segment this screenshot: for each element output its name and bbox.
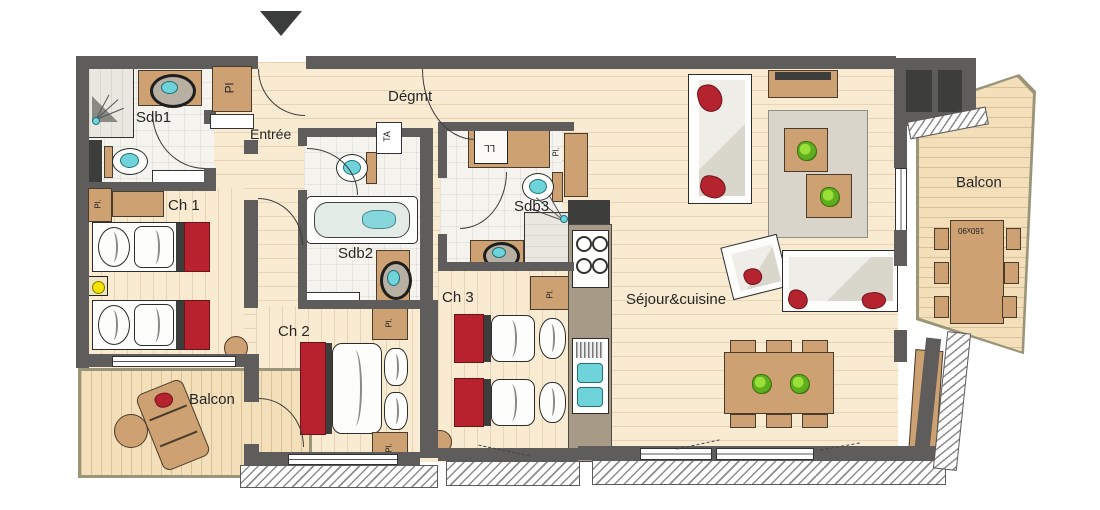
dining-chair <box>730 414 756 428</box>
sink-basin-sdb1 <box>161 81 178 94</box>
wall <box>244 354 259 402</box>
sink-basin-sdb3 <box>492 247 506 258</box>
exterior-hatch <box>592 460 946 485</box>
wall <box>894 230 907 266</box>
window-ch2 <box>288 454 398 465</box>
tv <box>775 72 831 80</box>
balcony-chair <box>1004 262 1019 284</box>
burner <box>576 236 592 252</box>
bed-ch3-2 <box>452 376 568 429</box>
burner <box>576 258 592 274</box>
balcony-table-size: 160x90 <box>958 226 984 234</box>
washing-machine-label: LL <box>484 142 495 152</box>
balcony-round-table <box>114 414 148 448</box>
burner <box>592 236 608 252</box>
cabinet-ch1 <box>112 191 164 217</box>
oven <box>568 200 610 224</box>
electrical-light <box>92 281 105 294</box>
room-label-ch3: Ch 3 <box>442 290 474 305</box>
wall <box>420 300 438 458</box>
room-label-ch2: Ch 2 <box>278 324 310 339</box>
wall <box>298 190 307 308</box>
closet-label: Pl. <box>95 199 103 208</box>
wall <box>298 300 430 309</box>
balcony-table <box>950 220 1004 324</box>
room-label-ch1: Ch 1 <box>168 198 200 213</box>
toilet-bowl-sdb1 <box>120 153 139 168</box>
ta-label: TA <box>383 131 392 142</box>
wall <box>204 168 216 184</box>
room-label-balcon-right: Balcon <box>956 175 1002 190</box>
bathtub-water-sdb2 <box>362 210 396 229</box>
balcony-chair <box>934 296 949 318</box>
bed-ch1-2 <box>92 298 210 353</box>
room-label-entree: Entrée <box>250 127 291 141</box>
wall <box>244 200 258 308</box>
room-label-balcon-left: Balcon <box>189 392 235 407</box>
closet-label: Pl <box>223 83 235 94</box>
entrance-arrow-icon <box>260 11 302 36</box>
balcony-chair <box>1002 296 1017 318</box>
shelf-entree <box>210 114 254 129</box>
window-balcony <box>895 168 907 232</box>
room-label-sdb1: Sdb1 <box>136 110 171 125</box>
toilet-bowl-sdb3 <box>529 179 547 194</box>
bed-ch1-1 <box>92 220 210 275</box>
floor-plan: Pl. Pl. LL Pl. Pl. <box>0 0 1100 510</box>
shaft <box>938 70 962 112</box>
wall <box>894 330 907 362</box>
exterior-hatch <box>240 465 438 488</box>
bed-ch3-1 <box>452 312 568 365</box>
window-living-2 <box>716 448 814 460</box>
dining-chair <box>766 414 792 428</box>
plant <box>820 187 840 207</box>
shaft <box>906 70 932 112</box>
wall <box>244 140 258 154</box>
closet-label: Pl. <box>386 318 394 327</box>
kitchen-sink-unit <box>572 338 609 414</box>
dining-table <box>724 352 834 414</box>
closet-sdb3 <box>564 133 588 197</box>
wall <box>306 56 896 69</box>
dining-chair <box>802 414 828 428</box>
burner <box>592 258 608 274</box>
wall <box>420 128 433 308</box>
plant <box>790 374 810 394</box>
closet-label: Pl. <box>553 147 561 156</box>
sink-basin-sdb2 <box>387 270 400 286</box>
window-ch1 <box>112 356 236 367</box>
window-living-1 <box>640 448 712 460</box>
wall <box>894 120 907 168</box>
room-label-sdb3: Sdb3 <box>514 199 549 214</box>
balcony-chair <box>934 228 949 250</box>
plant <box>752 374 772 394</box>
room-label-sdb2: Sdb2 <box>338 246 373 261</box>
closet-label: Pl. <box>547 289 555 298</box>
balcony-chair <box>1006 228 1021 250</box>
room-label-sejour: Séjour&cuisine <box>626 292 726 307</box>
bed-ch2 <box>300 340 410 437</box>
wall <box>298 128 307 146</box>
shower-head-sdb1 <box>92 117 100 125</box>
wall <box>438 122 447 178</box>
wall <box>298 128 430 137</box>
exterior-hatch <box>446 461 580 486</box>
room-label-degmt: Dégmt <box>388 89 432 104</box>
shower-head-sdb3 <box>560 215 568 223</box>
balcony-chair <box>934 262 949 284</box>
wall <box>438 262 574 271</box>
plant <box>797 141 817 161</box>
